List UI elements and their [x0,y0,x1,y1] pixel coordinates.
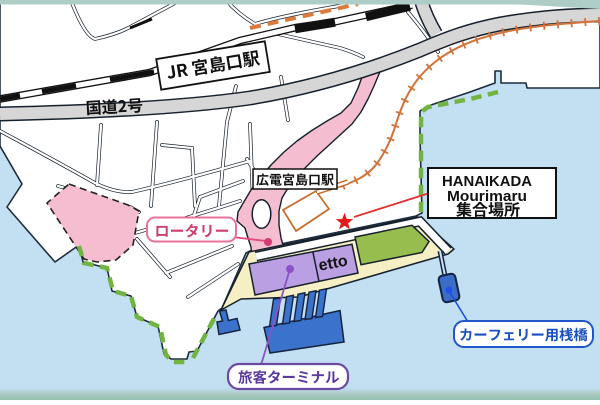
svg-text:Mourimaru: Mourimaru [447,188,527,205]
